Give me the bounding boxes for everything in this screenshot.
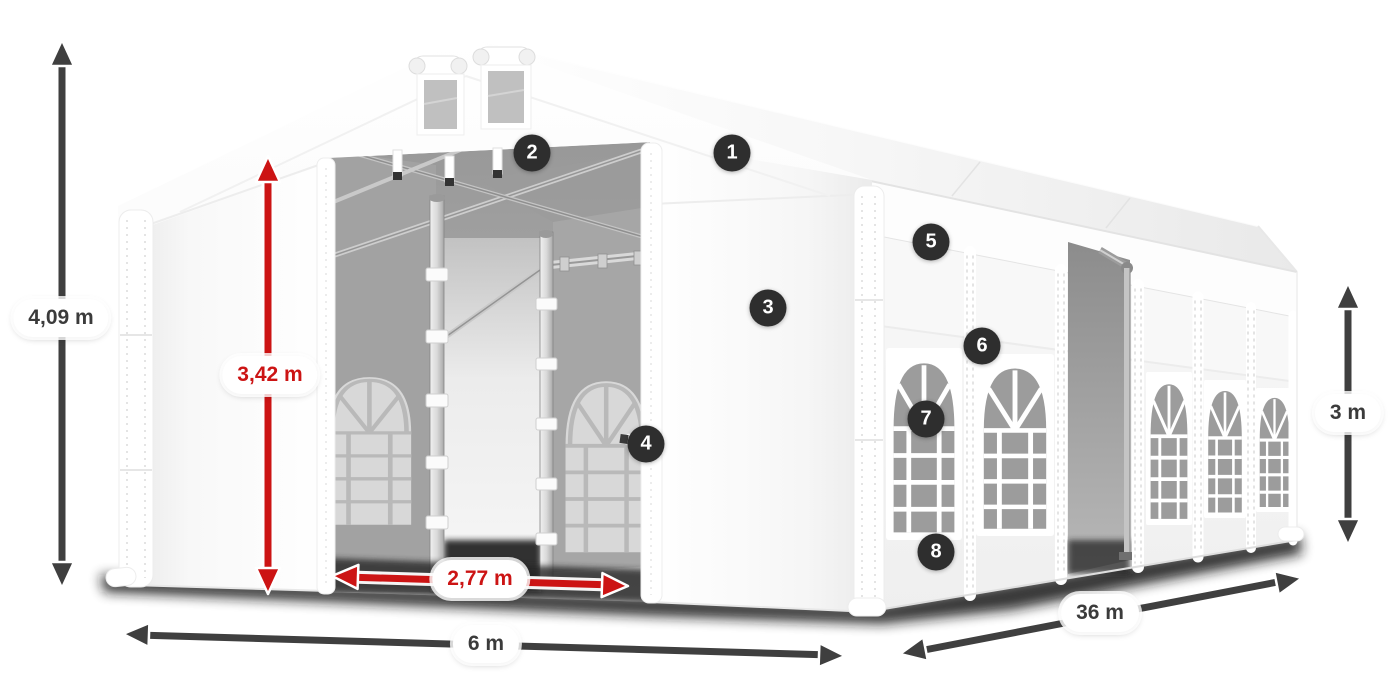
dimension-label-length: 36 m xyxy=(1061,594,1139,632)
hotspot-badge-7[interactable]: 7 xyxy=(908,401,945,438)
arrow-head xyxy=(50,40,74,66)
hotspot-badge-3[interactable]: 3 xyxy=(750,290,787,327)
gable-vent-window-right xyxy=(473,47,535,129)
side-window-3 xyxy=(1146,372,1192,525)
hotspot-badge-5[interactable]: 5 xyxy=(913,224,950,261)
hotspot-badge-8[interactable]: 8 xyxy=(918,534,955,571)
arrow-head xyxy=(1336,283,1360,309)
hotspot-badge-6[interactable]: 6 xyxy=(964,328,1001,365)
hotspot-badge-1[interactable]: 1 xyxy=(714,135,751,172)
gable-vent-window-left xyxy=(409,56,467,135)
tent-dimensions-diagram: 4,09 m 3,42 m 2,77 m 6 m 36 m 3 m 1 2 3 … xyxy=(0,0,1400,700)
arrow-head xyxy=(898,637,928,666)
arrow-head xyxy=(50,562,74,588)
side-doorway xyxy=(1068,242,1135,574)
arrow-head xyxy=(819,643,846,668)
arrow-head xyxy=(123,622,150,647)
front-right-corner-trim xyxy=(848,186,886,616)
tent-interior xyxy=(326,140,656,605)
tent-foot xyxy=(1278,527,1304,541)
side-window-2 xyxy=(976,354,1054,536)
dimension-label-entrance-width: 2,77 m xyxy=(432,560,527,598)
tent-illustration xyxy=(0,0,1400,700)
dimension-label-side-height: 3 m xyxy=(1315,394,1381,432)
front-right-panel xyxy=(650,142,872,612)
side-window-4 xyxy=(1204,380,1246,518)
dimension-label-total-height: 4,09 m xyxy=(13,299,108,337)
front-left-corner-trim xyxy=(105,210,153,588)
arrow-head xyxy=(1336,519,1360,545)
dimension-label-inner-height: 3,42 m xyxy=(222,356,317,394)
arrow-head xyxy=(1274,566,1304,595)
interior-right-window xyxy=(566,381,647,552)
dimension-label-span-width: 6 m xyxy=(453,625,519,663)
inner-doorway-gap xyxy=(444,238,541,592)
hotspot-badge-2[interactable]: 2 xyxy=(514,135,551,172)
hotspot-badge-4[interactable]: 4 xyxy=(628,426,665,463)
side-window-1 xyxy=(886,348,962,540)
interior-left-window xyxy=(328,377,412,525)
side-window-5 xyxy=(1256,388,1293,512)
